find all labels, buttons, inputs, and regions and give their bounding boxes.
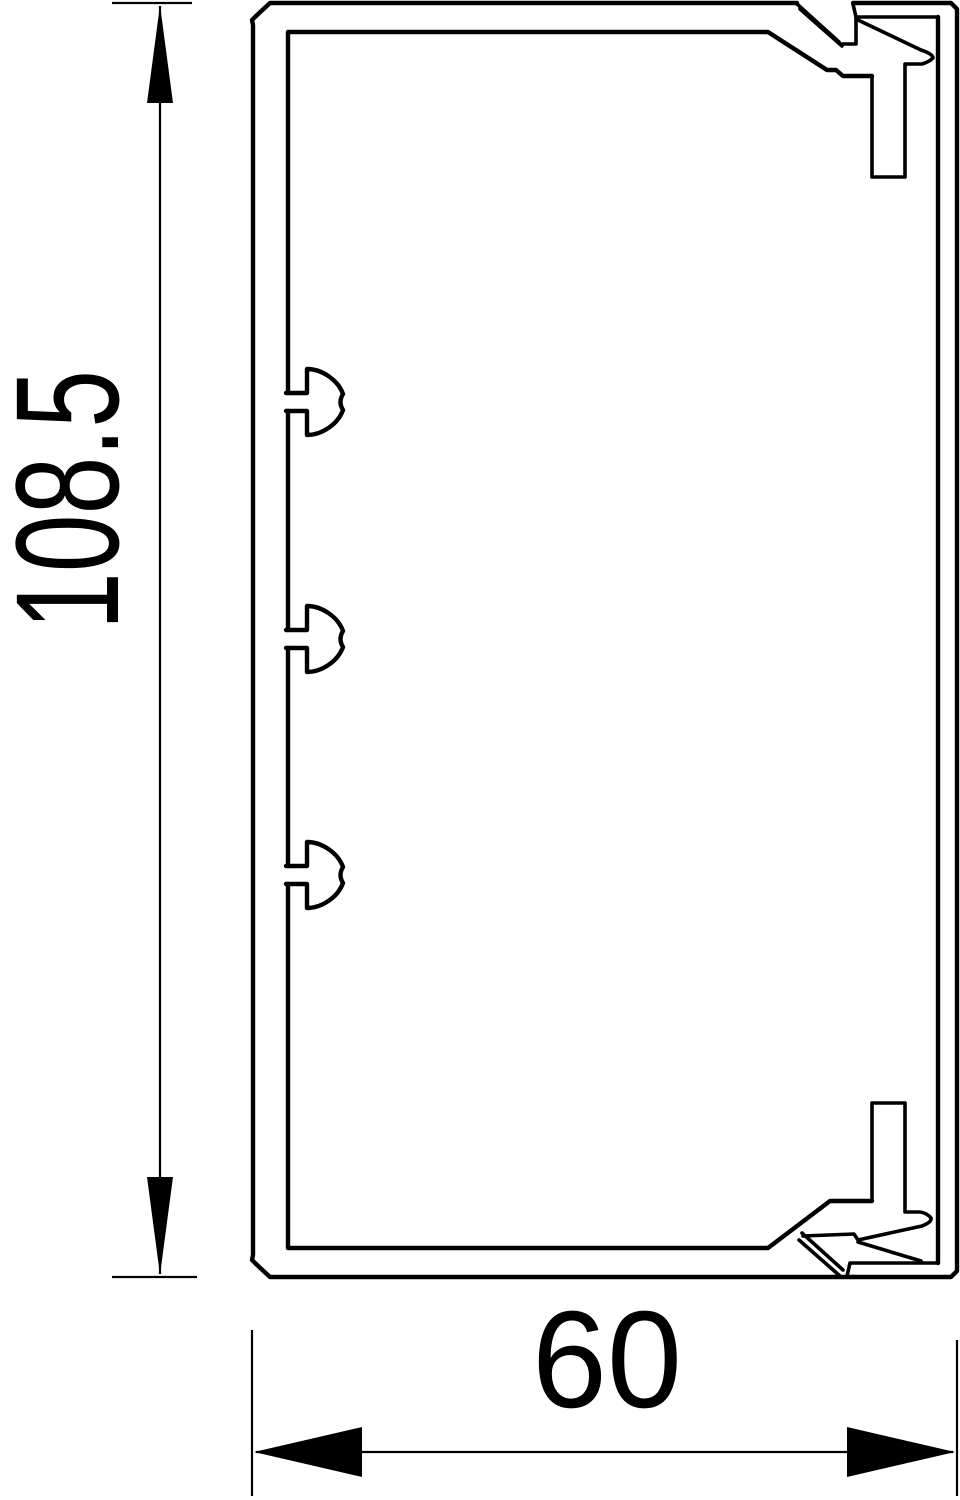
arrow-up-icon xyxy=(147,5,173,103)
retention-clip-bottom xyxy=(286,842,343,908)
latch-bottom-seam-line-1 xyxy=(799,1240,840,1276)
arrow-down-icon xyxy=(147,1177,173,1275)
retention-clip-top xyxy=(286,369,343,435)
trunking-base-profile xyxy=(252,3,872,1277)
trunking-cross-section: 108.5 60 xyxy=(0,0,960,1500)
arrow-right-icon xyxy=(847,1427,955,1477)
latch-bottom-clamp-foot xyxy=(803,1103,931,1240)
latch-top-seam-line-2 xyxy=(800,9,842,46)
latch-bottom-fan-line xyxy=(858,1242,921,1261)
arrow-left-icon xyxy=(254,1427,362,1477)
latch-bottom-seam-line-2 xyxy=(802,1233,843,1270)
width-dimension: 60 xyxy=(252,1283,957,1496)
technical-drawing: 108.5 60 xyxy=(0,0,960,1500)
latch-bottom-corner-pocket xyxy=(847,1263,938,1276)
latch-top-clamp-foot xyxy=(858,20,933,177)
cover-outer-contour xyxy=(853,3,957,1277)
height-dimension: 108.5 xyxy=(0,3,197,1277)
retention-clip-middle xyxy=(286,606,343,672)
base-inner-contour xyxy=(288,32,872,1248)
latch-top-corner-pocket xyxy=(842,4,856,44)
cover-latch-top xyxy=(797,4,938,177)
cover-profile xyxy=(797,3,957,1277)
width-dimension-label: 60 xyxy=(532,1283,682,1437)
cover-latch-bottom xyxy=(799,1103,938,1276)
height-dimension-label: 108.5 xyxy=(0,370,150,630)
